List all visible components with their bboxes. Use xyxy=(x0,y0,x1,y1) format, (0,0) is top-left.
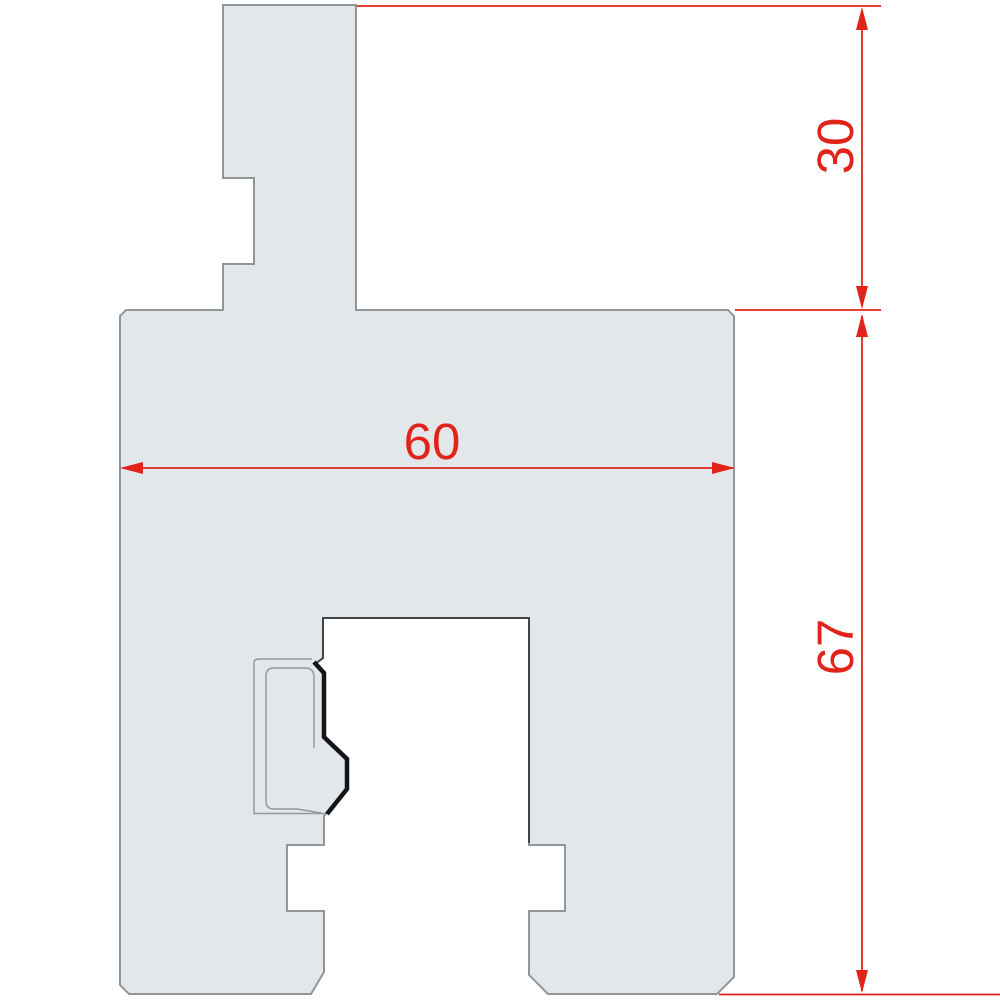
dimension-label-67: 67 xyxy=(807,619,864,676)
arrow-67-up xyxy=(856,314,868,337)
arrow-30-down xyxy=(856,286,868,309)
arrow-67-down xyxy=(856,970,868,993)
technical-drawing: 30 67 60 xyxy=(0,0,1000,1000)
slot-inner-edges xyxy=(315,618,529,843)
part-profile xyxy=(120,5,734,994)
drawing-canvas: 30 67 60 xyxy=(0,0,1000,1000)
arrow-30-up xyxy=(856,7,868,30)
dimension-label-30: 30 xyxy=(807,118,864,175)
dimension-label-60: 60 xyxy=(404,413,461,470)
